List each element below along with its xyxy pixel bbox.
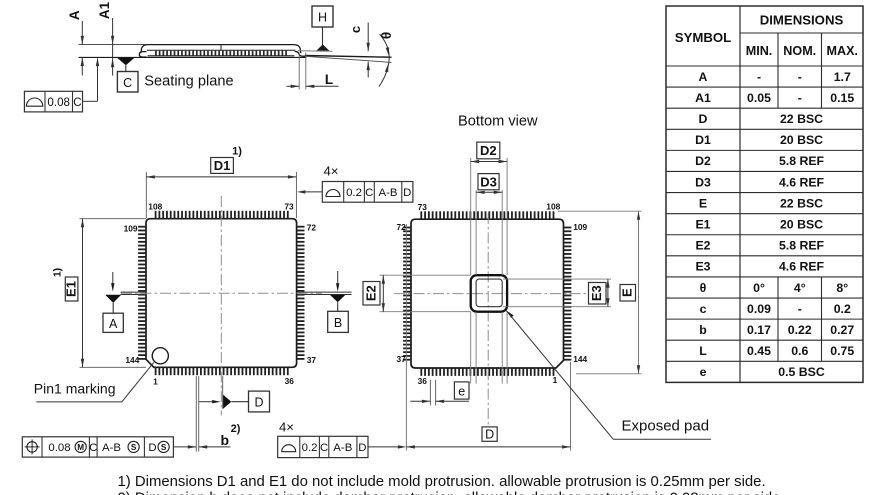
svg-text:A1: A1	[97, 1, 112, 19]
svg-text:0.22: 0.22	[788, 323, 812, 337]
svg-text:36: 36	[418, 376, 428, 386]
svg-text:E2: E2	[695, 239, 710, 253]
svg-text:MAX.: MAX.	[827, 44, 858, 58]
svg-text:0.15: 0.15	[830, 91, 854, 105]
svg-text:1: 1	[153, 377, 158, 387]
svg-text:θ: θ	[700, 281, 707, 295]
svg-text:H: H	[318, 11, 327, 25]
svg-text:2) Dimension b does not includ: 2) Dimension b does not include dambar p…	[118, 490, 785, 495]
svg-text:A-B: A-B	[333, 442, 352, 454]
svg-text:-: -	[798, 70, 802, 84]
svg-text:MIN.: MIN.	[746, 44, 773, 58]
svg-text:S: S	[131, 443, 137, 452]
svg-text:C: C	[320, 442, 328, 454]
svg-text:D: D	[485, 428, 494, 442]
svg-text:22 BSC: 22 BSC	[780, 196, 823, 210]
svg-text:D1: D1	[695, 133, 711, 147]
svg-text:DIMENSIONS: DIMENSIONS	[760, 12, 844, 27]
svg-text:A: A	[109, 317, 118, 331]
svg-text:A1: A1	[695, 91, 711, 105]
svg-text:0.09: 0.09	[747, 302, 771, 316]
svg-text:M: M	[77, 443, 84, 452]
svg-text:0.2: 0.2	[834, 302, 851, 316]
svg-text:0.2: 0.2	[302, 442, 318, 454]
svg-text:4°: 4°	[794, 281, 806, 295]
svg-text:Bottom view: Bottom view	[458, 114, 538, 130]
svg-text:72: 72	[396, 222, 406, 232]
svg-text:E1: E1	[64, 281, 79, 297]
svg-text:D: D	[403, 187, 411, 199]
svg-text:4×: 4×	[279, 420, 294, 435]
svg-text:109: 109	[124, 223, 138, 233]
svg-text:S: S	[161, 443, 167, 452]
svg-text:144: 144	[573, 354, 587, 364]
svg-text:Pin1 marking: Pin1 marking	[34, 381, 116, 397]
svg-text:A-B: A-B	[102, 442, 121, 454]
svg-text:D: D	[699, 112, 708, 126]
svg-text:-: -	[798, 91, 802, 105]
svg-text:E3: E3	[589, 285, 604, 301]
svg-text:0.27: 0.27	[830, 323, 854, 337]
svg-text:C: C	[73, 96, 81, 109]
svg-text:0.75: 0.75	[830, 344, 854, 358]
svg-text:-: -	[798, 302, 802, 316]
svg-text:c: c	[700, 302, 707, 316]
svg-text:A: A	[699, 70, 708, 84]
svg-text:0.05: 0.05	[747, 91, 771, 105]
svg-text:D: D	[148, 442, 156, 454]
svg-text:1: 1	[553, 375, 558, 385]
svg-text:b: b	[221, 432, 230, 448]
svg-text:1): 1)	[232, 146, 242, 158]
svg-text:5.8 REF: 5.8 REF	[779, 239, 825, 253]
svg-text:108: 108	[546, 201, 560, 211]
svg-text:θ: θ	[379, 32, 394, 39]
svg-text:Seating plane: Seating plane	[144, 74, 233, 90]
svg-text:0.17: 0.17	[747, 323, 771, 337]
svg-text:L: L	[325, 72, 333, 87]
svg-text:1): 1)	[52, 268, 64, 277]
svg-text:5.8 REF: 5.8 REF	[779, 154, 825, 168]
svg-text:37: 37	[396, 354, 406, 364]
svg-text:1) Dimensions D1 and E1 do not: 1) Dimensions D1 and E1 do not include m…	[118, 474, 766, 490]
svg-text:109: 109	[573, 222, 587, 232]
svg-text:D: D	[358, 442, 366, 454]
svg-text:C: C	[365, 187, 373, 199]
svg-text:e: e	[700, 365, 707, 379]
svg-text:E: E	[699, 196, 707, 210]
svg-text:0.6: 0.6	[791, 344, 808, 358]
svg-text:L: L	[699, 344, 707, 358]
svg-text:Exposed pad: Exposed pad	[622, 418, 710, 435]
svg-text:36: 36	[285, 376, 295, 386]
svg-text:e: e	[458, 385, 465, 399]
svg-text:8°: 8°	[836, 281, 848, 295]
svg-text:D2: D2	[480, 143, 497, 158]
svg-text:-: -	[757, 70, 761, 84]
svg-text:0.2: 0.2	[346, 187, 362, 199]
svg-text:22 BSC: 22 BSC	[780, 112, 823, 126]
svg-text:C: C	[89, 442, 97, 454]
svg-text:4×: 4×	[323, 164, 338, 179]
svg-text:SYMBOL: SYMBOL	[675, 30, 731, 45]
svg-text:B: B	[334, 316, 342, 330]
svg-text:c: c	[348, 26, 363, 33]
svg-text:D3: D3	[480, 175, 497, 190]
svg-text:D3: D3	[695, 175, 711, 189]
svg-text:73: 73	[418, 202, 428, 212]
svg-text:0.08: 0.08	[47, 96, 70, 109]
svg-text:4.6 REF: 4.6 REF	[779, 260, 825, 274]
svg-text:E2: E2	[363, 285, 378, 301]
svg-text:0°: 0°	[753, 281, 765, 295]
svg-text:72: 72	[307, 223, 317, 233]
svg-text:0.45: 0.45	[747, 344, 771, 358]
svg-text:D2: D2	[695, 154, 711, 168]
svg-text:A-B: A-B	[379, 187, 398, 199]
svg-text:20 BSC: 20 BSC	[780, 218, 823, 232]
svg-text:D: D	[254, 396, 263, 410]
svg-text:144: 144	[125, 355, 139, 365]
svg-text:20 BSC: 20 BSC	[780, 133, 823, 147]
svg-text:4.6 REF: 4.6 REF	[779, 175, 825, 189]
svg-text:0.5 BSC: 0.5 BSC	[778, 365, 825, 379]
svg-text:0.08: 0.08	[48, 442, 70, 454]
svg-text:E3: E3	[695, 260, 710, 274]
svg-text:37: 37	[307, 355, 317, 365]
svg-text:b: b	[699, 323, 707, 337]
svg-text:E1: E1	[695, 218, 710, 232]
svg-text:D1: D1	[214, 158, 231, 173]
svg-text:108: 108	[148, 201, 162, 211]
svg-text:2): 2)	[231, 423, 241, 435]
svg-text:1.7: 1.7	[834, 70, 851, 84]
svg-text:NOM.: NOM.	[783, 44, 816, 58]
svg-text:A: A	[67, 10, 82, 20]
svg-text:E: E	[620, 288, 635, 297]
svg-text:C: C	[123, 76, 132, 90]
svg-text:73: 73	[284, 201, 294, 211]
